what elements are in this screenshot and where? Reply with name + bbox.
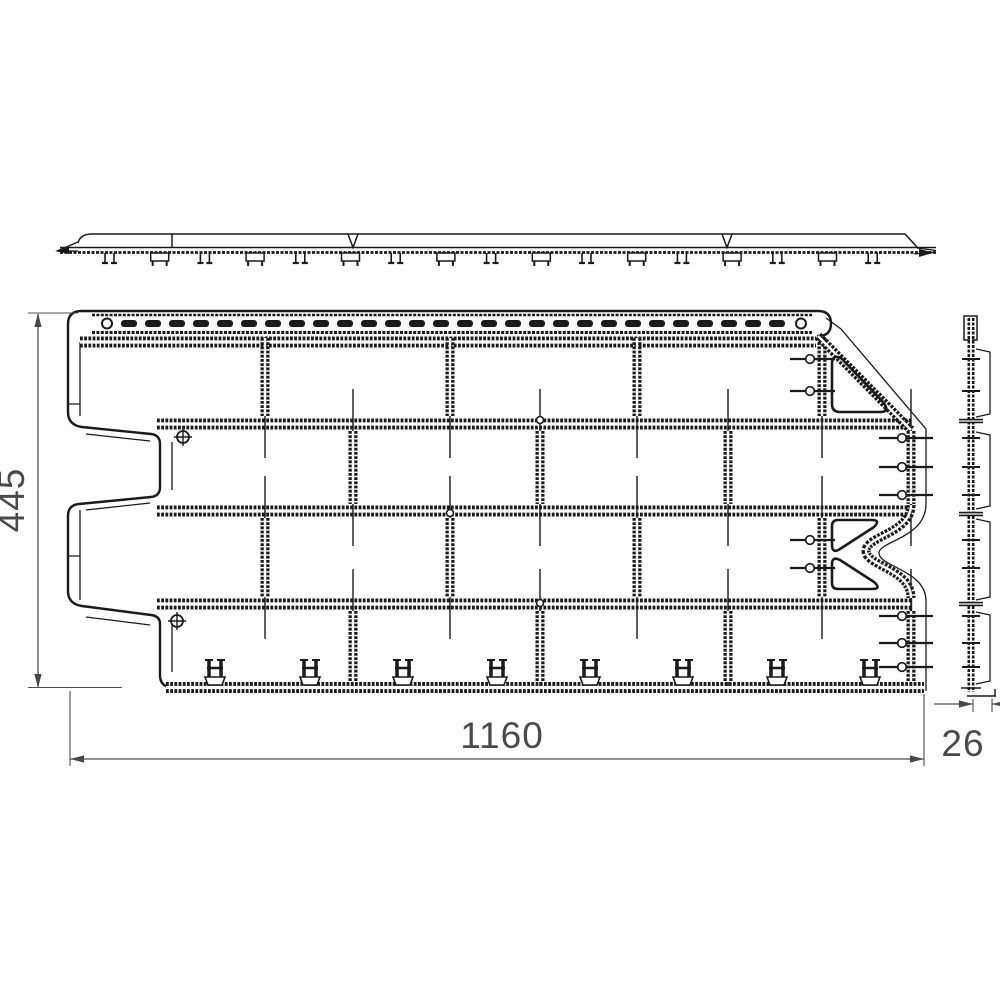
nail-slot (289, 320, 305, 327)
top-tab-block (437, 253, 455, 261)
nail-slot (553, 320, 569, 327)
pin-circle (806, 387, 815, 396)
nail-slot (265, 320, 281, 327)
side-view (959, 316, 996, 696)
nail-slot (313, 320, 329, 327)
top-tab-block (628, 253, 646, 261)
nail-slot (673, 320, 689, 327)
nail-slot (577, 320, 593, 327)
nail-slot (241, 320, 257, 327)
front-view (68, 311, 933, 691)
facade-panel-drawing: 445 1160 26 (0, 0, 1000, 1000)
dimension-depth: 26 (934, 699, 1000, 764)
joint-mark-circle (537, 417, 544, 424)
nail-slot (145, 320, 161, 327)
nail-strip-hole (796, 319, 806, 329)
panel-outline (68, 311, 911, 687)
pin-circle (898, 491, 907, 500)
clip-foot (767, 677, 787, 685)
pin-circle (898, 434, 907, 443)
nail-slot (193, 320, 209, 327)
arrowhead-down (34, 674, 41, 688)
clip-foot (860, 677, 880, 685)
arrowhead-right (959, 700, 973, 707)
pin-circle (806, 564, 815, 573)
side-bracket (976, 519, 990, 600)
top-view-profile (78, 234, 917, 247)
nail-slot (433, 320, 449, 327)
nail-slot (769, 320, 785, 327)
top-tab-block (342, 253, 360, 261)
clip-foot (393, 677, 413, 685)
nail-slot (745, 320, 761, 327)
joint-mark-circle (537, 600, 544, 607)
top-tab-block (819, 253, 837, 261)
nail-slot (529, 320, 545, 327)
nail-slot (385, 320, 401, 327)
nail-slot (697, 320, 713, 327)
top-view-vnotch (722, 234, 732, 248)
nail-slot (409, 320, 425, 327)
nail-slot (121, 320, 137, 327)
nail-slot (505, 320, 521, 327)
clip-foot (300, 677, 320, 685)
dimension-depth-label: 26 (941, 723, 984, 764)
nail-slot (217, 320, 233, 327)
clip-foot (205, 677, 225, 685)
nail-slot (481, 320, 497, 327)
nail-slot (457, 320, 473, 327)
clip-foot (487, 677, 507, 685)
top-tab-block (532, 253, 550, 261)
top-tab-block (246, 253, 264, 261)
nail-slot (601, 320, 617, 327)
top-tab-block (723, 253, 741, 261)
side-view-brackets (976, 349, 990, 684)
clip-foot (580, 677, 600, 685)
nail-slot (649, 320, 665, 327)
pin-circle (806, 355, 815, 364)
clip-foot (673, 677, 693, 685)
nail-slot (361, 320, 377, 327)
nail-slot (625, 320, 641, 327)
nail-strip-hole (102, 319, 112, 329)
top-view (55, 234, 936, 266)
technical-drawing-page: 445 1160 26 (0, 0, 1000, 1000)
nail-slot (721, 320, 737, 327)
top-tab-block (151, 253, 169, 261)
arrowhead-right (910, 755, 924, 762)
arrowhead-up (34, 313, 41, 327)
pin-circle (898, 639, 907, 648)
nail-slot (337, 320, 353, 327)
dimension-width-label: 1160 (460, 715, 544, 756)
arrowhead-left (992, 700, 1000, 707)
top-view-tabs (102, 253, 880, 266)
pin-circle (898, 463, 907, 472)
dimension-width: 1160 (70, 691, 924, 766)
dimension-height-label: 445 (0, 468, 32, 533)
side-view-bottom-step (961, 688, 996, 696)
pin-circle (806, 536, 815, 545)
top-view-vnotch (348, 234, 358, 248)
side-bracket (976, 432, 990, 509)
arrowhead-left (70, 755, 84, 762)
pin-circle (898, 663, 907, 672)
nail-slot (169, 320, 185, 327)
joint-mark-circle (447, 510, 454, 517)
pin-circle (898, 612, 907, 621)
side-bracket (976, 612, 990, 684)
